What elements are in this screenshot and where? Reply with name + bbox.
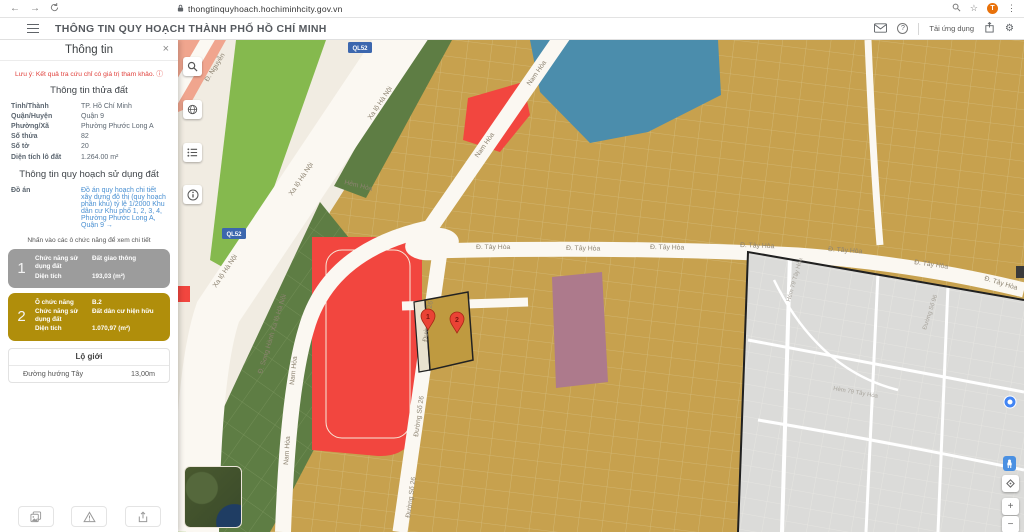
app-header: THÔNG TIN QUY HOẠCH THÀNH PHỐ HỒ CHÍ MIN…: [0, 18, 1024, 40]
zone-mixed-mauve[interactable]: [552, 272, 608, 388]
header-divider: [918, 23, 919, 35]
svg-text:2: 2: [455, 317, 459, 324]
do-an-link[interactable]: Đồ án quy hoạch chi tiết xây dựng đô thị…: [81, 187, 167, 229]
browser-reload-icon[interactable]: [50, 3, 59, 15]
zones-hint-text: Nhấn vào các ô chức năng để xem chi tiết: [16, 237, 162, 244]
zone-card-1[interactable]: 1 Chức năng sử dụng đấtĐất giao thông Di…: [8, 249, 170, 288]
gear-icon[interactable]: ⚙: [1005, 23, 1014, 34]
report-issue-button[interactable]: [71, 506, 107, 527]
zone-card-2[interactable]: 2 Ô chức năngB.2 Chức năng sử dụng đấtĐấ…: [8, 293, 170, 341]
planning-map[interactable]: QL52 QL52 Đ. Nguyễn Xa lộ Hà Nội Xa lộ H…: [178, 40, 1024, 532]
browser-search-icon[interactable]: [952, 3, 961, 14]
parcel-field-row: Phường/Xã Phường Phước Long A: [0, 121, 178, 131]
street-label: Đ. Tây Hòa: [566, 245, 601, 253]
map-legend-button[interactable]: [183, 143, 202, 162]
parcel-field-row: Quận/Huyện Quận 9: [0, 111, 178, 121]
browser-forward-icon[interactable]: →: [30, 3, 40, 15]
svg-text:QL52: QL52: [226, 232, 242, 238]
locate-me-button[interactable]: [1002, 475, 1019, 492]
map-search-button[interactable]: [183, 57, 202, 76]
lo-gioi-row: Đường hướng Tây 13,00m: [9, 366, 169, 382]
zone-number: 1: [8, 254, 35, 282]
geolocation-dot: [1004, 396, 1017, 409]
svg-text:1: 1: [426, 314, 430, 321]
route-badge-ql52: QL52: [222, 228, 246, 239]
info-panel: Thông tin × Lưu ý: Kết quả tra cứu chỉ c…: [0, 40, 178, 532]
parcel-field-row: Số tờ 20: [0, 142, 178, 152]
panel-actions: [0, 506, 178, 527]
parcel-section-title: Thông tin thửa đất: [0, 85, 178, 96]
planning-app-window: ← → thongtinquyhoach.hochiminhcity.gov.v…: [0, 0, 1024, 532]
copy-report-button[interactable]: [18, 506, 54, 527]
lo-gioi-header: Lộ giới: [9, 349, 169, 366]
address-bar[interactable]: thongtinquyhoach.hochiminhcity.gov.vn: [177, 4, 343, 14]
street-view-pegman[interactable]: [1003, 456, 1016, 471]
parcel-field-row: Diện tích lô đất 1.264.00 m²: [0, 152, 178, 162]
lo-gioi-table: Lộ giới Đường hướng Tây 13,00m: [8, 348, 170, 383]
svg-text:QL52: QL52: [352, 46, 368, 52]
info-icon[interactable]: ⓘ: [156, 68, 163, 78]
app-title: THÔNG TIN QUY HOẠCH THÀNH PHỐ HỒ CHÍ MIN…: [55, 23, 327, 35]
padlock-icon: [177, 4, 184, 14]
route-badge-ql52: QL52: [348, 42, 372, 53]
browser-menu-icon[interactable]: ⋮: [1007, 3, 1016, 14]
parcel-field-row: Tỉnh/Thành TP. Hồ Chí Minh: [0, 101, 178, 111]
help-icon[interactable]: ?: [897, 23, 908, 34]
hamburger-menu-icon[interactable]: [27, 24, 39, 34]
link-arrow-icon: →: [106, 222, 113, 229]
street-label: Đ. Tây Hòa: [476, 244, 510, 251]
do-an-label: Đồ án: [11, 187, 81, 229]
zone-red-block[interactable]: [312, 237, 422, 456]
browser-chrome: ← → thongtinquyhoach.hochiminhcity.gov.v…: [0, 0, 1024, 18]
zoom-in-button[interactable]: +: [1002, 498, 1019, 515]
map-canvas[interactable]: QL52 QL52 Đ. Nguyễn Xa lộ Hà Nội Xa lộ H…: [178, 40, 1024, 532]
share-icon[interactable]: [984, 20, 995, 38]
close-icon[interactable]: ×: [163, 44, 169, 55]
panel-title: Thông tin: [65, 44, 113, 56]
zone-number: 2: [8, 298, 35, 335]
satellite-minimap-toggle[interactable]: [184, 466, 242, 528]
map-layers-button[interactable]: [183, 100, 202, 119]
profile-avatar[interactable]: T: [987, 3, 998, 14]
edge-badge: [1016, 266, 1024, 278]
browser-back-icon[interactable]: ←: [10, 3, 20, 15]
zone-red-edge[interactable]: [178, 286, 190, 302]
do-an-row: Đồ án Đồ án quy hoạch chi tiết xây dựng …: [0, 185, 178, 230]
bookmark-star-icon[interactable]: ☆: [970, 3, 978, 14]
export-share-button[interactable]: [125, 506, 161, 527]
map-info-button[interactable]: [183, 185, 202, 204]
disclaimer-text: Lưu ý: Kết quả tra cứu chỉ có giá trị th…: [8, 68, 170, 78]
street-label: Đ. Tây Hòa: [650, 244, 685, 252]
planning-section-title: Thông tin quy hoạch sử dụng đất: [0, 169, 178, 180]
download-app-link[interactable]: Tải ứng dụng: [929, 24, 974, 33]
zoom-out-button[interactable]: −: [1002, 516, 1019, 532]
url-text: thongtinquyhoach.hochiminhcity.gov.vn: [188, 4, 343, 14]
parcel-field-row: Số thửa 82: [0, 132, 178, 142]
street-label: Đ. Tây Hòa: [740, 242, 775, 250]
mail-icon[interactable]: [874, 20, 887, 38]
